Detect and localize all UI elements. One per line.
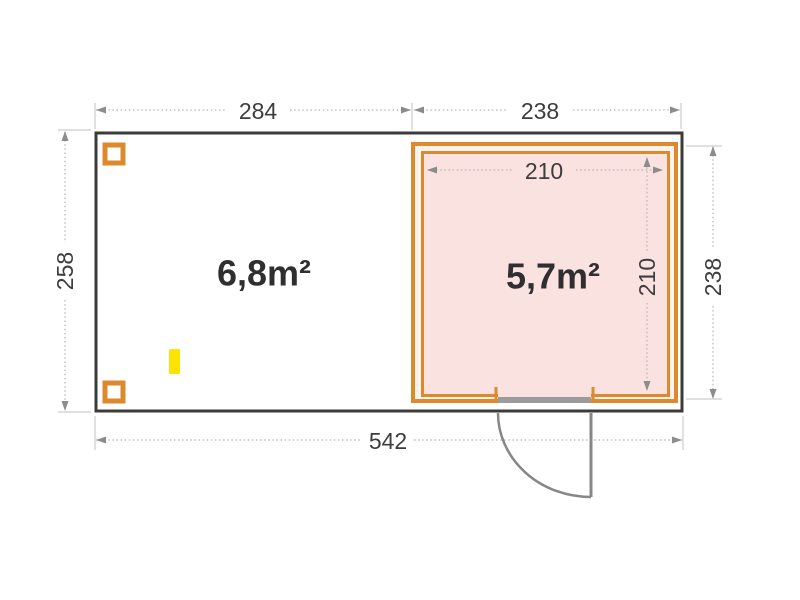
arrowhead-icon <box>401 107 411 114</box>
door-swing-arc <box>498 413 591 497</box>
dimension-top-left-width: 284 <box>95 98 412 130</box>
post-top-left <box>105 145 123 163</box>
dimension-label: 542 <box>369 428 407 454</box>
arrowhead-icon <box>62 401 69 411</box>
dimension-top-right-width: 238 <box>414 98 681 129</box>
arrowhead-icon <box>62 131 69 141</box>
door-opening-floor <box>498 384 591 398</box>
dimension-label: 238 <box>521 98 559 124</box>
dimension-left-height: 258 <box>52 130 91 412</box>
dimension-label: 258 <box>52 252 78 290</box>
dimension-label: 238 <box>700 258 726 296</box>
area-label-left: 6,8m² <box>217 253 311 294</box>
arrowhead-icon <box>672 437 682 444</box>
dimension-label: 284 <box>239 98 278 124</box>
dimension-label: 210 <box>525 158 563 184</box>
floor-plan-svg: 284 238 258 238 542 <box>0 0 800 600</box>
post-bottom-left <box>105 383 123 401</box>
arrowhead-icon <box>670 107 680 114</box>
floor-plan-page: 284 238 258 238 542 <box>0 0 800 600</box>
dimension-label: 210 <box>634 258 660 296</box>
dimension-total-width: 542 <box>95 416 683 454</box>
arrowhead-icon <box>414 107 424 114</box>
arrowhead-icon <box>710 389 717 399</box>
area-label-right: 5,7m² <box>506 256 600 297</box>
dimension-right-height: 238 <box>686 146 726 399</box>
arrowhead-icon <box>96 437 106 444</box>
arrowhead-icon <box>710 146 717 156</box>
door-threshold <box>498 397 591 403</box>
arrowhead-icon <box>96 107 106 114</box>
yellow-marker <box>169 349 180 374</box>
